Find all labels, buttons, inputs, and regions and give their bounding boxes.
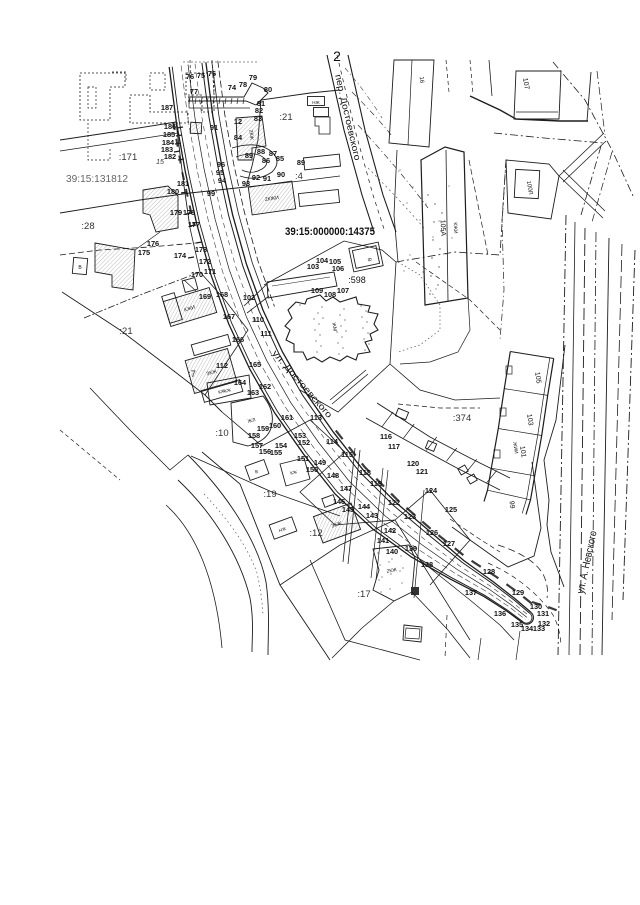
svg-text:76: 76 (208, 69, 216, 78)
svg-text:140: 140 (386, 547, 398, 556)
svg-text:180: 180 (167, 187, 179, 196)
svg-text:116: 116 (380, 432, 392, 441)
svg-text:141: 141 (377, 536, 389, 545)
svg-text:110: 110 (252, 315, 264, 324)
svg-text:95: 95 (216, 168, 224, 177)
svg-text:112: 112 (216, 361, 228, 370)
svg-text:123: 123 (404, 512, 416, 521)
svg-text:16: 16 (418, 76, 425, 84)
svg-text:128: 128 (483, 567, 495, 576)
svg-text:147: 147 (340, 484, 352, 493)
svg-text:94: 94 (218, 176, 227, 185)
svg-text:2КЖ: 2КЖ (248, 130, 255, 141)
svg-text:12: 12 (234, 117, 242, 126)
svg-text:175: 175 (138, 248, 150, 257)
svg-text:84: 84 (234, 133, 243, 142)
svg-text:86: 86 (262, 156, 270, 165)
svg-text:148: 148 (327, 471, 339, 480)
svg-text:187: 187 (161, 103, 173, 112)
svg-text:133: 133 (533, 624, 545, 633)
svg-text:88: 88 (257, 147, 265, 156)
svg-text:124: 124 (425, 486, 438, 495)
svg-text:162: 162 (259, 382, 271, 391)
svg-text:118: 118 (359, 468, 371, 477)
svg-text:НЖ: НЖ (312, 100, 320, 105)
svg-text::21: :21 (279, 112, 292, 123)
svg-text::17: :17 (357, 589, 370, 600)
svg-text:89: 89 (245, 151, 253, 160)
svg-text:179: 179 (170, 208, 182, 217)
svg-text::21: :21 (119, 326, 132, 337)
svg-text:119: 119 (370, 479, 382, 488)
svg-text:80: 80 (264, 85, 272, 94)
svg-text:39:15:000000:14375: 39:15:000000:14375 (285, 226, 375, 238)
svg-text:78: 78 (239, 80, 247, 89)
svg-text:39:15:131812: 39:15:131812 (66, 174, 128, 185)
svg-text:85: 85 (276, 154, 284, 163)
svg-text:103: 103 (307, 262, 319, 271)
svg-text::171: :171 (119, 152, 138, 163)
svg-text:КЖИ: КЖИ (452, 222, 459, 234)
svg-text::10: :10 (215, 428, 228, 439)
svg-text:182: 182 (164, 152, 176, 161)
svg-text:15: 15 (156, 159, 164, 166)
svg-text:168: 168 (216, 290, 228, 299)
svg-text::4: :4 (295, 171, 303, 182)
svg-text:138: 138 (421, 560, 433, 569)
svg-text:127: 127 (443, 539, 455, 548)
svg-text:158: 158 (248, 431, 260, 440)
svg-text:174: 174 (174, 251, 187, 260)
svg-text:165: 165 (249, 360, 261, 369)
svg-text::12: :12 (309, 528, 322, 539)
svg-text:137: 137 (465, 588, 477, 597)
svg-text:99: 99 (207, 189, 215, 198)
svg-text:75: 75 (197, 71, 205, 80)
svg-text:106: 106 (332, 264, 344, 273)
svg-text:89: 89 (297, 158, 305, 167)
svg-text:122: 122 (388, 498, 400, 507)
svg-text:172: 172 (199, 257, 211, 266)
svg-text:170: 170 (191, 270, 203, 279)
svg-text:111: 111 (260, 329, 272, 338)
svg-text:126: 126 (426, 528, 438, 537)
svg-text:96: 96 (217, 160, 225, 169)
svg-text:93: 93 (242, 179, 250, 188)
svg-text:90: 90 (277, 170, 285, 179)
svg-text:125: 125 (445, 505, 457, 514)
svg-text:77: 77 (190, 87, 198, 96)
svg-text:167: 167 (223, 312, 235, 321)
svg-text:152: 152 (298, 438, 310, 447)
svg-text:151: 151 (297, 454, 309, 463)
svg-text:136: 136 (494, 609, 506, 618)
svg-text:117: 117 (388, 442, 400, 451)
svg-text:108: 108 (324, 290, 336, 299)
svg-text:92: 92 (252, 173, 260, 182)
svg-text:131: 131 (537, 609, 549, 618)
svg-text:169: 169 (199, 292, 211, 301)
svg-text:99: 99 (507, 500, 515, 509)
svg-text:129: 129 (512, 588, 524, 597)
svg-text:166: 166 (232, 335, 244, 344)
svg-text:102: 102 (243, 293, 255, 302)
svg-text:173: 173 (195, 245, 207, 254)
svg-text:79: 79 (249, 73, 257, 82)
svg-text:83: 83 (254, 114, 262, 123)
svg-text:114: 114 (326, 437, 339, 446)
svg-text:121: 121 (416, 467, 428, 476)
svg-text:91: 91 (263, 174, 271, 183)
svg-text:161: 161 (281, 413, 293, 422)
svg-text:171: 171 (204, 267, 216, 276)
svg-text:149: 149 (314, 458, 326, 467)
svg-text:154: 154 (275, 441, 288, 450)
svg-text:135: 135 (511, 620, 523, 629)
svg-text::19: :19 (263, 489, 276, 500)
svg-text::374: :374 (453, 413, 472, 424)
svg-text:164: 164 (234, 378, 247, 387)
svg-text::598: :598 (348, 275, 366, 285)
svg-text:143: 143 (366, 511, 378, 520)
svg-text:177: 177 (188, 220, 200, 229)
svg-text:178: 178 (183, 208, 195, 217)
svg-text:163: 163 (247, 388, 259, 397)
svg-text:74: 74 (228, 83, 237, 92)
svg-text:160: 160 (269, 421, 281, 430)
svg-text:91: 91 (210, 123, 218, 132)
svg-text:113: 113 (310, 413, 322, 422)
svg-text::28: :28 (81, 221, 94, 232)
svg-text::7: :7 (188, 369, 196, 380)
svg-text:142: 142 (384, 526, 396, 535)
svg-text:139: 139 (405, 544, 417, 553)
svg-text:76: 76 (186, 72, 194, 81)
svg-text:105А: 105А (439, 220, 447, 237)
svg-text:176: 176 (147, 239, 159, 248)
svg-text:145: 145 (342, 505, 354, 514)
svg-text:144: 144 (358, 502, 371, 511)
svg-text:107: 107 (337, 286, 349, 295)
svg-text:109: 109 (311, 286, 323, 295)
svg-text:115: 115 (341, 450, 353, 459)
